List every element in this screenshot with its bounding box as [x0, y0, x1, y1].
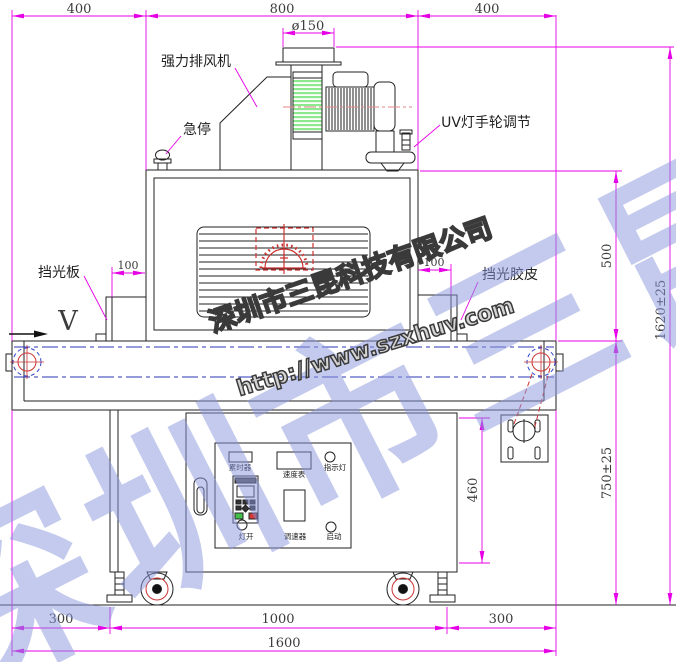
inverter-vfd [233, 476, 258, 523]
panel-label-lamp-switch: 灯开 [239, 531, 254, 541]
exhaust-fan-housing [220, 77, 291, 170]
conveyor-centerlines [14, 347, 554, 377]
dim-bottom-center: 1000 [261, 612, 294, 627]
start-button-icon [326, 522, 336, 532]
dim-top-left: 400 [67, 2, 92, 17]
dim-chamber-height: 500 [600, 244, 615, 269]
cad-drawing-canvas: 400 800 ø150 400 100 100 500 1620±25 750… [0, 0, 676, 662]
label-shield-left: 挡光板 [38, 265, 80, 281]
label-uv-handwheel: UV灯手轮调节 [441, 115, 531, 131]
dim-duct-diameter: ø150 [292, 19, 325, 34]
speed-regulator-knob [284, 490, 305, 521]
drive-bracket-plate [501, 415, 548, 462]
speed-meter-window [277, 452, 311, 469]
label-exhaust-fan: 强力排风机 [161, 54, 231, 70]
dim-stand-height: 750±25 [600, 447, 615, 499]
light-shield-left [96, 297, 146, 341]
indicator-light-icon [325, 452, 335, 462]
conveyor-rollers [10, 345, 558, 430]
dim-bottom-total: 1600 [267, 636, 300, 651]
dim-top-center: 800 [270, 2, 295, 17]
dim-bottom-right: 300 [489, 612, 514, 627]
panel-label-speed-regulator: 调速器 [284, 532, 307, 541]
emergency-stop-icon [154, 150, 171, 170]
fan-wheel [293, 72, 322, 139]
panel-label-hour-counter: 累时器 [229, 462, 252, 472]
label-shield-right: 挡光胶皮 [482, 266, 538, 283]
direction-arrow-icon [9, 331, 48, 338]
label-emergency-stop: 急停 [183, 121, 211, 138]
direction-label: V [57, 306, 78, 337]
hour-counter-window [229, 452, 252, 462]
uv-curing-machine-drawing: 400 800 ø150 400 100 100 500 1620±25 750… [0, 0, 676, 662]
dim-total-height: 1620±25 [654, 280, 669, 341]
dim-top-right: 400 [475, 2, 500, 17]
uv-handwheel-assembly [366, 130, 415, 171]
caster-wheels [141, 572, 419, 605]
dim-shield-right: 100 [424, 256, 445, 269]
lamp-switch-icon [237, 520, 247, 530]
dim-cabinet-height: 460 [466, 478, 481, 503]
fan-motor [326, 72, 395, 131]
panel-label-start: 启动 [327, 531, 342, 541]
panel-label-speed-meter: 速度表 [283, 469, 306, 479]
dim-bottom-left: 300 [49, 612, 74, 627]
uv-lamp-symbol [256, 224, 313, 274]
dim-shield-left: 100 [118, 259, 139, 272]
panel-label-indicator: 指示灯 [324, 462, 347, 472]
light-shield-right [418, 295, 467, 341]
conveyor [6, 341, 563, 410]
uv-chamber-body [146, 170, 418, 341]
